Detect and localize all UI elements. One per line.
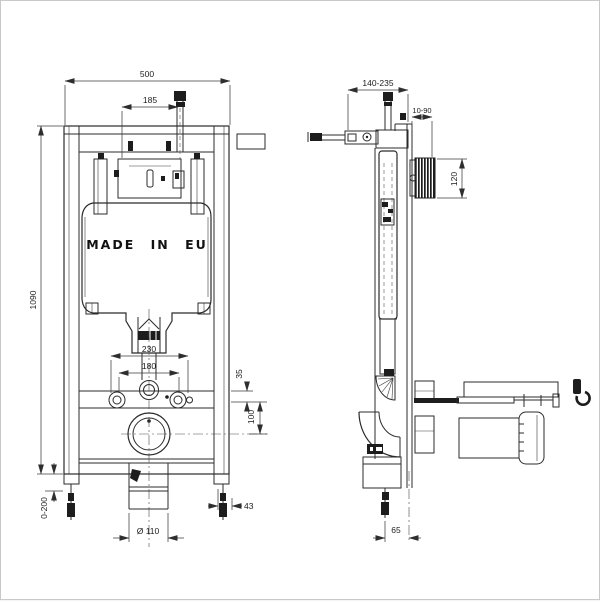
fixings-and-drain xyxy=(109,309,268,547)
dim-outlet-offset: 65 xyxy=(391,525,401,535)
wall-bracket xyxy=(237,134,265,149)
rail-brackets xyxy=(414,381,459,453)
front-view: MADE IN EU xyxy=(28,69,268,547)
adjustable-legs xyxy=(64,474,229,520)
dim-depth-range: 140-235 xyxy=(362,78,393,88)
wall-mounting-plate xyxy=(410,158,435,198)
accessory-parts xyxy=(457,379,590,464)
flush-elbow-small xyxy=(376,369,395,400)
fixing-bolt-left xyxy=(109,392,125,408)
filling-valve-pipe-side xyxy=(383,92,393,130)
flat-bracket-part xyxy=(457,397,514,403)
outlet-elbow xyxy=(359,412,401,518)
cistern-side xyxy=(379,151,397,374)
mounting-rail-part xyxy=(464,382,558,397)
mounting-frame-side xyxy=(375,113,412,488)
installation-frame-drawing: MADE IN EU xyxy=(1,1,600,601)
dim-drain-drop: 100 xyxy=(246,410,256,424)
fixing-bolt-right xyxy=(170,392,186,408)
cistern-front: MADE IN EU xyxy=(82,203,211,353)
slide-struts xyxy=(94,153,204,214)
hanger-bolt-right xyxy=(166,141,171,151)
dim-leg-adjust: 0-200 xyxy=(39,497,49,519)
dim-flush-drop: 35 xyxy=(234,369,244,379)
dim-fixing-inner: 180 xyxy=(142,361,156,371)
side-view: 140-235 10-90 120 65 xyxy=(308,78,467,542)
dim-fixing-outer: 230 xyxy=(142,344,156,354)
flush-pipe-connector-part xyxy=(459,412,544,464)
technical-drawing-page: MADE IN EU xyxy=(0,0,600,600)
dim-frame-width: 500 xyxy=(140,69,154,79)
flush-plate-window xyxy=(114,159,184,198)
dim-drain-diameter: Ø 110 xyxy=(137,526,160,536)
dim-plate-height: 120 xyxy=(449,172,459,186)
dim-leg-offset: 43 xyxy=(244,501,254,511)
threaded-rod-part xyxy=(514,394,559,407)
made-in-eu-label: MADE IN EU xyxy=(86,237,208,252)
hanger-bolt-left xyxy=(128,141,133,151)
pipe-clamp-part xyxy=(573,379,590,405)
drain-pipe xyxy=(129,463,168,509)
dim-valve-offset: 185 xyxy=(143,95,157,105)
filling-valve-pipe xyxy=(174,91,186,159)
water-supply-valve xyxy=(308,131,378,144)
dim-frame-height: 1090 xyxy=(28,290,38,309)
dim-wall-gap: 10-90 xyxy=(412,106,431,115)
